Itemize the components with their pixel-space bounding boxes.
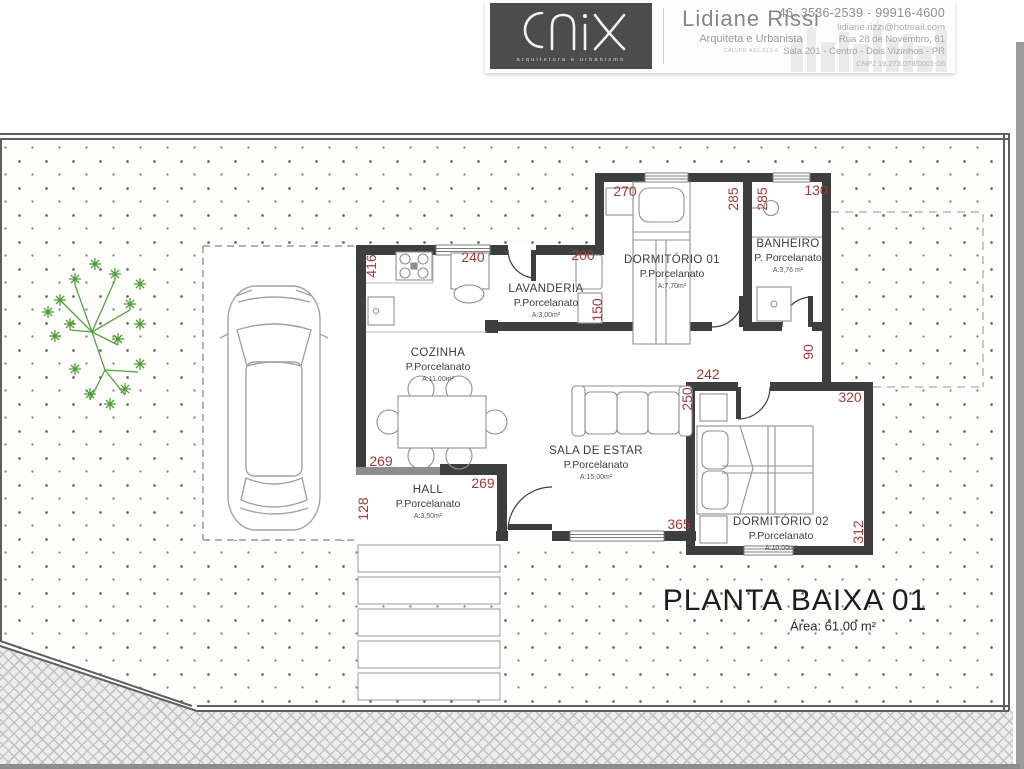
dimension-label: 270 [613, 183, 636, 199]
cnpj: CNPJ 19.273.078/0001-06 [770, 59, 945, 68]
dimension-label: 320 [838, 389, 861, 405]
title-block-divider [663, 8, 664, 64]
dimension-label: 250 [679, 387, 695, 410]
plan-title: PLANTA BAIXA 01 [663, 584, 928, 618]
title-block: ONIX arquitetura e urbanismo Lidiane Ris… [485, 0, 955, 73]
page-edge-shadow-bottom [0, 764, 1020, 769]
tree [42, 258, 146, 410]
floor-plan-page: DORMITÓRIO 01 P.Porcelanato A:7,70m² BAN… [0, 0, 1024, 769]
logo-subtext: arquitetura e urbanismo [490, 57, 652, 63]
dimension-label: 269 [471, 475, 494, 491]
dimension-label: 90 [800, 344, 816, 360]
address-line-2: Sala 201 - Centro - Dois Vizinhos - PR [770, 46, 945, 57]
dimension-label: 240 [461, 249, 484, 265]
dimension-label: 242 [696, 366, 719, 382]
room-label-dormitorio-01: DORMITÓRIO 01 P.Porcelanato A:7,70m² [624, 253, 720, 291]
page-edge-shadow-right [1016, 42, 1024, 769]
room-label-cozinha: COZINHA P.Porcelanato A:11,00m² [406, 346, 471, 384]
onix-logo: ONIX arquitetura e urbanismo [490, 3, 652, 69]
double-bed-icon [697, 426, 813, 514]
plan-total-area: Área: 61.00 m² [790, 619, 876, 634]
shower-tray-icon [757, 287, 791, 321]
room-label-hall: HALL P.Porcelanato A:3,50m² [396, 483, 461, 521]
dimension-label: 150 [589, 298, 605, 321]
entry-steps [358, 545, 500, 700]
nightstand-icon [700, 394, 727, 421]
dimension-label: 269 [369, 453, 392, 469]
room-label-sala-de-estar: SALA DE ESTAR P.Porcelanato A:15,00m² [549, 444, 643, 482]
email: lidiane.rizzi@hotmail.com [770, 22, 945, 33]
dimension-label: 200 [571, 247, 594, 263]
dimension-label: 285 [754, 187, 770, 210]
fridge-icon [368, 297, 394, 325]
plan-drawing [0, 0, 1024, 769]
room-label-dormitorio-02: DORMITÓRIO 02 P.Porcelanato A:10,00m² [733, 515, 829, 553]
dimension-label: 416 [363, 254, 379, 277]
room-label-banheiro: BANHEIRO P. Porcelanato A:3,76 m² [754, 237, 822, 275]
dimension-label: 365 [667, 516, 690, 532]
phone-numbers: 46. 3536-2539 - 99916-4600 [770, 6, 945, 20]
dimension-label: 285 [725, 187, 741, 210]
dimension-label: 130 [804, 182, 827, 198]
setback-dashed-line [831, 212, 983, 387]
contact-info: 46. 3536-2539 - 99916-4600 lidiane.rizzi… [770, 6, 945, 68]
onix-logo-glyphs [490, 3, 652, 53]
dimension-label: 128 [355, 497, 371, 520]
dimension-label: 312 [850, 520, 866, 543]
nightstand-icon [700, 516, 727, 543]
room-label-lavanderia: LAVANDERIA P.Porcelanato A:3,00m² [508, 282, 583, 320]
address-line-1: Rua 28 de Novembro, 81 [770, 34, 945, 45]
sofa-icon [572, 386, 692, 436]
